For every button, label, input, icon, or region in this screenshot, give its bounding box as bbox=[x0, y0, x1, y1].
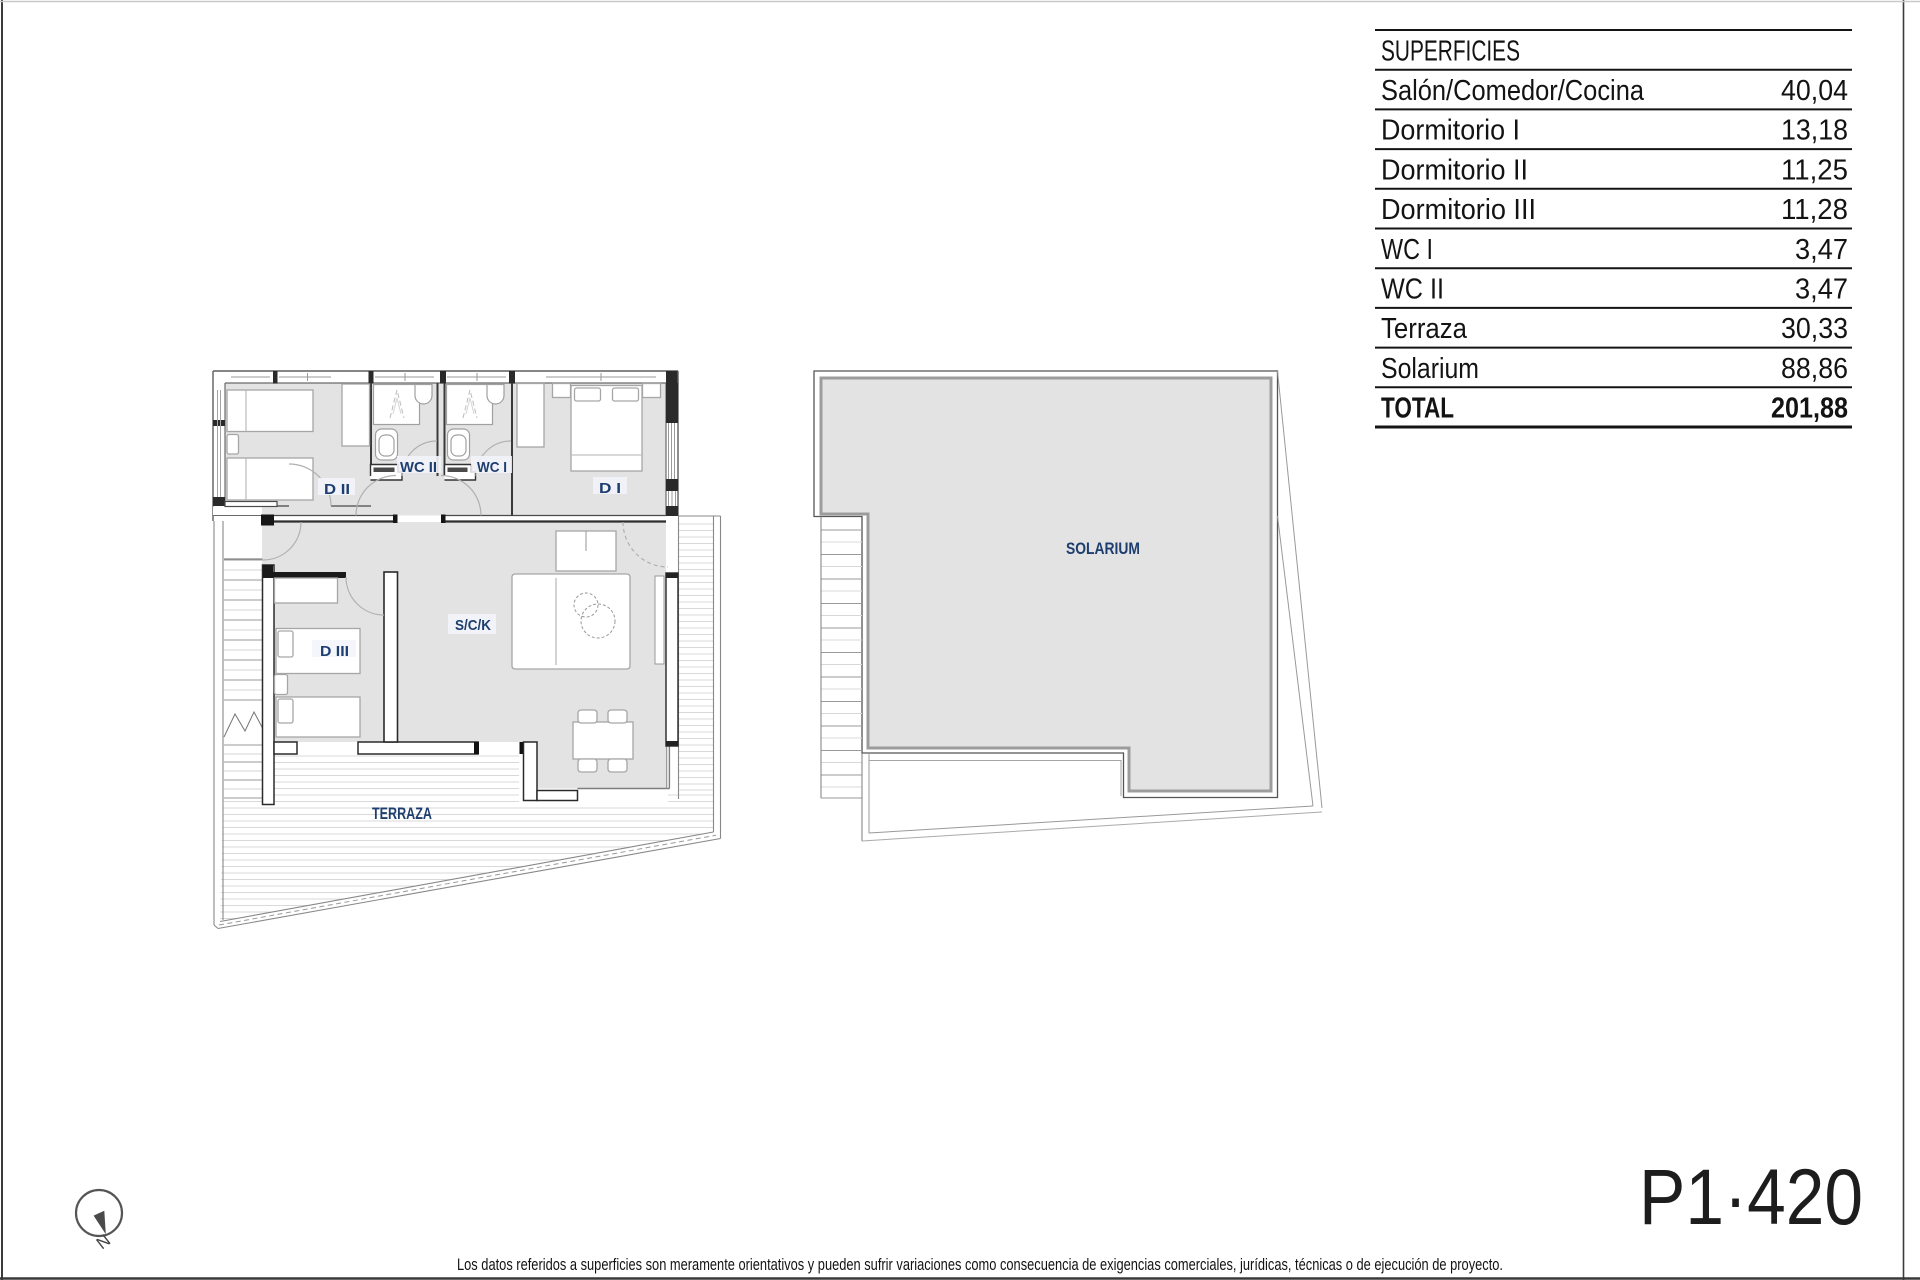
svg-text:3,47: 3,47 bbox=[1795, 274, 1848, 306]
svg-text:11,25: 11,25 bbox=[1781, 154, 1848, 186]
svg-text:S/C/K: S/C/K bbox=[455, 617, 491, 634]
svg-text:WC II: WC II bbox=[400, 459, 437, 476]
svg-text:WC II: WC II bbox=[1381, 274, 1444, 306]
svg-text:SOLARIUM: SOLARIUM bbox=[1066, 539, 1140, 558]
svg-text:WC I: WC I bbox=[477, 459, 507, 476]
svg-text:D I: D I bbox=[599, 480, 621, 497]
svg-text:13,18: 13,18 bbox=[1781, 115, 1848, 147]
svg-text:88,86: 88,86 bbox=[1781, 353, 1848, 385]
svg-text:D II: D II bbox=[324, 481, 350, 498]
svg-text:201,88: 201,88 bbox=[1771, 393, 1848, 425]
svg-text:D III: D III bbox=[320, 643, 349, 660]
svg-text:Dormitorio III: Dormitorio III bbox=[1381, 194, 1536, 226]
svg-text:40,04: 40,04 bbox=[1781, 75, 1848, 107]
svg-text:11,28: 11,28 bbox=[1781, 194, 1848, 226]
svg-text:P1·420: P1·420 bbox=[1639, 1152, 1863, 1241]
svg-text:WC I: WC I bbox=[1381, 234, 1433, 266]
svg-text:Salón/Comedor/Cocina: Salón/Comedor/Cocina bbox=[1381, 75, 1644, 107]
svg-text:Terraza: Terraza bbox=[1381, 313, 1467, 345]
svg-text:Los datos referidos a superfic: Los datos referidos a superficies son me… bbox=[457, 1256, 1503, 1274]
svg-text:Solarium: Solarium bbox=[1381, 353, 1479, 385]
svg-text:TOTAL: TOTAL bbox=[1381, 393, 1454, 425]
svg-text:3,47: 3,47 bbox=[1795, 234, 1848, 266]
svg-text:SUPERFICIES: SUPERFICIES bbox=[1381, 35, 1520, 67]
svg-text:30,33: 30,33 bbox=[1781, 313, 1848, 345]
svg-text:Dormitorio I: Dormitorio I bbox=[1381, 115, 1520, 147]
svg-text:Dormitorio II: Dormitorio II bbox=[1381, 154, 1528, 186]
svg-text:TERRAZA: TERRAZA bbox=[372, 804, 432, 823]
